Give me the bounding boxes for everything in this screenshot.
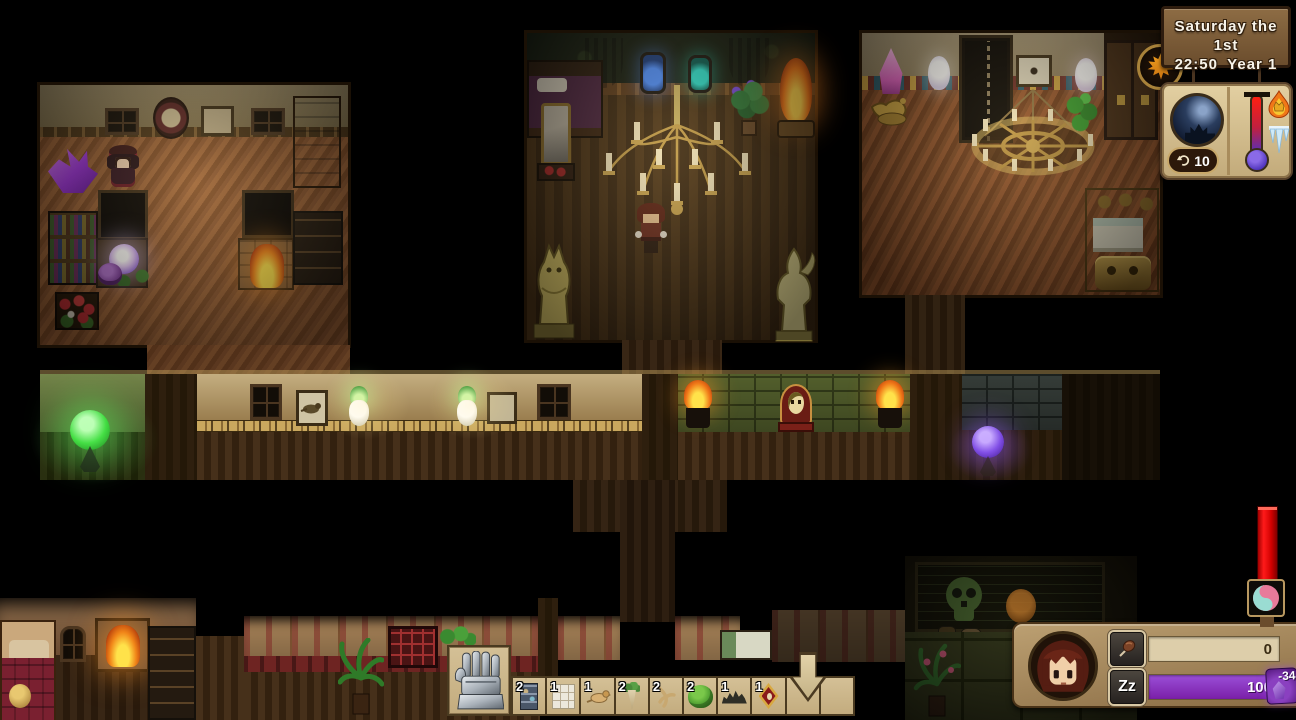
hallway-wainscot: [197, 432, 642, 480]
slot-count: 1: [550, 679, 557, 694]
hunger-icon-box: [1110, 632, 1144, 666]
slot-count: 2: [619, 679, 626, 694]
energy-delta-value: -34: [1278, 668, 1296, 683]
datetime-sign: Saturday the 1st 22:50 Year 1: [1161, 6, 1291, 68]
game-screen: Saturday the 1st 22:50 Year 1 10: [0, 0, 1296, 720]
shrine-face: [788, 392, 804, 414]
turnip-bulb: [349, 400, 369, 426]
golden-bed-face-carving: [1095, 256, 1151, 290]
fire-flames: [250, 244, 284, 288]
crystal-shard-icon: [1271, 681, 1288, 700]
plant-leaves: [728, 78, 770, 122]
orb-stand: [80, 446, 100, 472]
room-hall: [527, 33, 815, 340]
palm-plant: [338, 638, 384, 720]
white-bed[interactable]: [720, 630, 772, 660]
year-text: Year 1: [1227, 55, 1277, 74]
slot-count: 1: [755, 679, 762, 694]
bottom-pillar-1: [196, 636, 244, 720]
wallpaper-mid-1: [558, 616, 620, 660]
hotbar-slot-8[interactable]: 1: [752, 678, 786, 714]
mandrake-root: [626, 690, 638, 710]
slot-count: 2: [687, 679, 694, 694]
purple-slime[interactable]: [98, 263, 122, 285]
purple-orb-lamp[interactable]: [968, 424, 1008, 478]
hallway-picture: [487, 392, 517, 424]
slot-count: 1: [584, 679, 591, 694]
brazier-flame: [684, 380, 712, 410]
player-character[interactable]: [637, 203, 665, 255]
amethyst-crystal[interactable]: [48, 145, 98, 193]
floor-opening-left: [98, 190, 148, 240]
shrine-eye-right: [798, 400, 801, 404]
almanac-book-panel[interactable]: 10: [1160, 82, 1293, 180]
bed-pillow: [537, 78, 567, 92]
floor-opening-right: [242, 190, 294, 238]
flower-planter: [55, 292, 99, 330]
golden-bed[interactable]: [1085, 188, 1159, 292]
player-portrait[interactable]: [1028, 631, 1098, 701]
green-orb-lamp[interactable]: [62, 408, 118, 478]
golden-bed-sheet: [1093, 218, 1143, 252]
wardrobe-handle-right: [1141, 95, 1149, 105]
bird-art: [299, 397, 325, 417]
hotbar-slot-7[interactable]: 1: [718, 678, 752, 714]
time-text: 22:50: [1175, 55, 1218, 74]
bottom-bed[interactable]: [0, 620, 56, 720]
fire-lamp-base: [777, 120, 815, 138]
flower-plant: [913, 640, 961, 718]
hunger-value: 0: [1264, 637, 1272, 663]
hallway-pillar-2: [910, 374, 962, 480]
plant-pot: [741, 120, 757, 136]
turnip-sconce-1: [342, 386, 376, 438]
bookshelf[interactable]: [48, 211, 98, 285]
gauntlet-glove-icon: [454, 651, 504, 711]
study-fireplace[interactable]: [238, 238, 294, 290]
hallway-dark-end: [1062, 374, 1160, 480]
witch-face: [115, 157, 131, 168]
hunger-bar: 0: [1148, 636, 1280, 662]
shrine-eye-left: [791, 400, 794, 404]
castle-silhouette: [1185, 122, 1215, 146]
thermometer: [1250, 94, 1263, 156]
tool-slot[interactable]: [447, 645, 511, 716]
egg-sconce-right: [1075, 58, 1097, 92]
bottom-fire: [106, 625, 140, 667]
icicles-icon: [1268, 126, 1290, 156]
room-chamber: [862, 33, 1160, 295]
brazier-right: [874, 380, 906, 430]
hallway-window-2: [537, 384, 571, 420]
thermometer-bulb: [1245, 148, 1269, 172]
energy-delta-badge: -34: [1265, 667, 1296, 705]
shrine-base: [778, 422, 814, 432]
food-skewer-icon: [1116, 638, 1138, 660]
witch-dress: [111, 168, 135, 187]
date-text: Saturday the 1st: [1164, 17, 1288, 55]
bottom-fireplace[interactable]: [95, 618, 150, 672]
slot-count: 1: [721, 679, 728, 694]
flame-crown-icon: [1267, 90, 1291, 118]
orange-mask: [1006, 589, 1036, 623]
turnip-bulb: [457, 400, 477, 426]
stairwell-column: [620, 480, 675, 622]
player-legs: [644, 241, 658, 253]
fire-lamp[interactable]: [775, 58, 817, 142]
npc-witch[interactable]: [105, 145, 141, 189]
potted-plant-flowers: [728, 78, 770, 136]
hotbar-slot-3[interactable]: 1: [581, 678, 615, 714]
status-panel: 0 Zz 100 -34: [1012, 622, 1296, 708]
slot-count: 2: [516, 679, 523, 694]
hotbar-slot-4[interactable]: 2: [616, 678, 650, 714]
day-counter-value: 10: [1194, 153, 1210, 169]
player-face: [643, 214, 659, 223]
hotbar-slot-1[interactable]: 2: [513, 678, 547, 714]
night-castle-moon-icon: [1170, 93, 1224, 147]
bird-picture: [296, 390, 328, 426]
slot-count: 2: [653, 679, 660, 694]
drop-indicator[interactable]: [790, 652, 826, 702]
hallway-greystone-wall: [962, 374, 1062, 430]
wardrobe-handle-left: [1117, 95, 1125, 105]
skull-icon: [936, 571, 992, 629]
wall-picture: [201, 106, 234, 136]
hallway-window-1: [250, 384, 282, 420]
purple-orb: [972, 426, 1004, 458]
mask-shrine[interactable]: [778, 384, 814, 438]
hall-exit-corridor: [622, 340, 722, 374]
wall-plate-clock: [1016, 55, 1052, 87]
study-corridor-down: [145, 374, 197, 480]
hallway-frieze: [197, 420, 642, 432]
energy-bar: 100: [1148, 674, 1280, 700]
sleep-zz-icon: Zz: [1118, 678, 1136, 696]
player-body: [641, 223, 661, 241]
amulet-center: [767, 693, 772, 700]
player-hand-right: [660, 231, 667, 238]
energy-icon-box: Zz: [1110, 670, 1144, 704]
brazier-stand: [878, 408, 902, 428]
hallway-pillar-1: [642, 374, 678, 480]
player-hand-left: [635, 231, 642, 238]
undo-arrow-icon: [1176, 154, 1190, 168]
temperature-gauge-icon-frame: [1247, 579, 1285, 617]
study-window-right: [251, 108, 285, 135]
hotbar-slot-2[interactable]: 1: [547, 678, 581, 714]
fire-lamp-flame: [780, 58, 812, 122]
mirror-base: [537, 163, 575, 181]
player-face: [1031, 634, 1095, 698]
brazier-stand: [686, 408, 710, 428]
vine-plant: [1065, 92, 1099, 136]
carving-eye-left: [1107, 266, 1116, 275]
yin-yang-swirl-icon: [1251, 583, 1281, 613]
green-orb: [70, 410, 110, 450]
lattice-screen: [388, 626, 438, 668]
egg-sconce-left: [928, 56, 950, 90]
standing-mirror[interactable]: [541, 103, 571, 165]
temperature-gauge-bar: [1257, 506, 1278, 580]
down-arrow-fill: [793, 655, 823, 698]
bottom-arched-window: [60, 626, 86, 662]
orb-stand: [980, 456, 996, 476]
bed-red[interactable]: [293, 96, 341, 188]
wall-clock: [153, 97, 189, 139]
carving-eye-right: [1129, 266, 1138, 275]
angel-statue[interactable]: [770, 245, 818, 342]
study-window-left: [105, 108, 139, 135]
hotbar-slot-5[interactable]: 2: [650, 678, 684, 714]
hotbar-slot-6[interactable]: 2: [684, 678, 718, 714]
bottom-cabinet[interactable]: [148, 626, 196, 720]
hallway-greenstone-wainscot: [678, 432, 910, 480]
bed-gold-ornament: [9, 684, 31, 708]
turnip-sconce-2: [450, 386, 484, 438]
cat-statue[interactable]: [530, 240, 578, 340]
chamber-exit-corridor: [905, 295, 965, 374]
study-drawers[interactable]: [293, 211, 343, 285]
day-counter[interactable]: 10: [1167, 147, 1219, 174]
brazier-flame: [876, 380, 904, 410]
room-study: [40, 85, 348, 345]
brazier-left: [682, 380, 714, 430]
genie-lamp[interactable]: [870, 93, 914, 129]
